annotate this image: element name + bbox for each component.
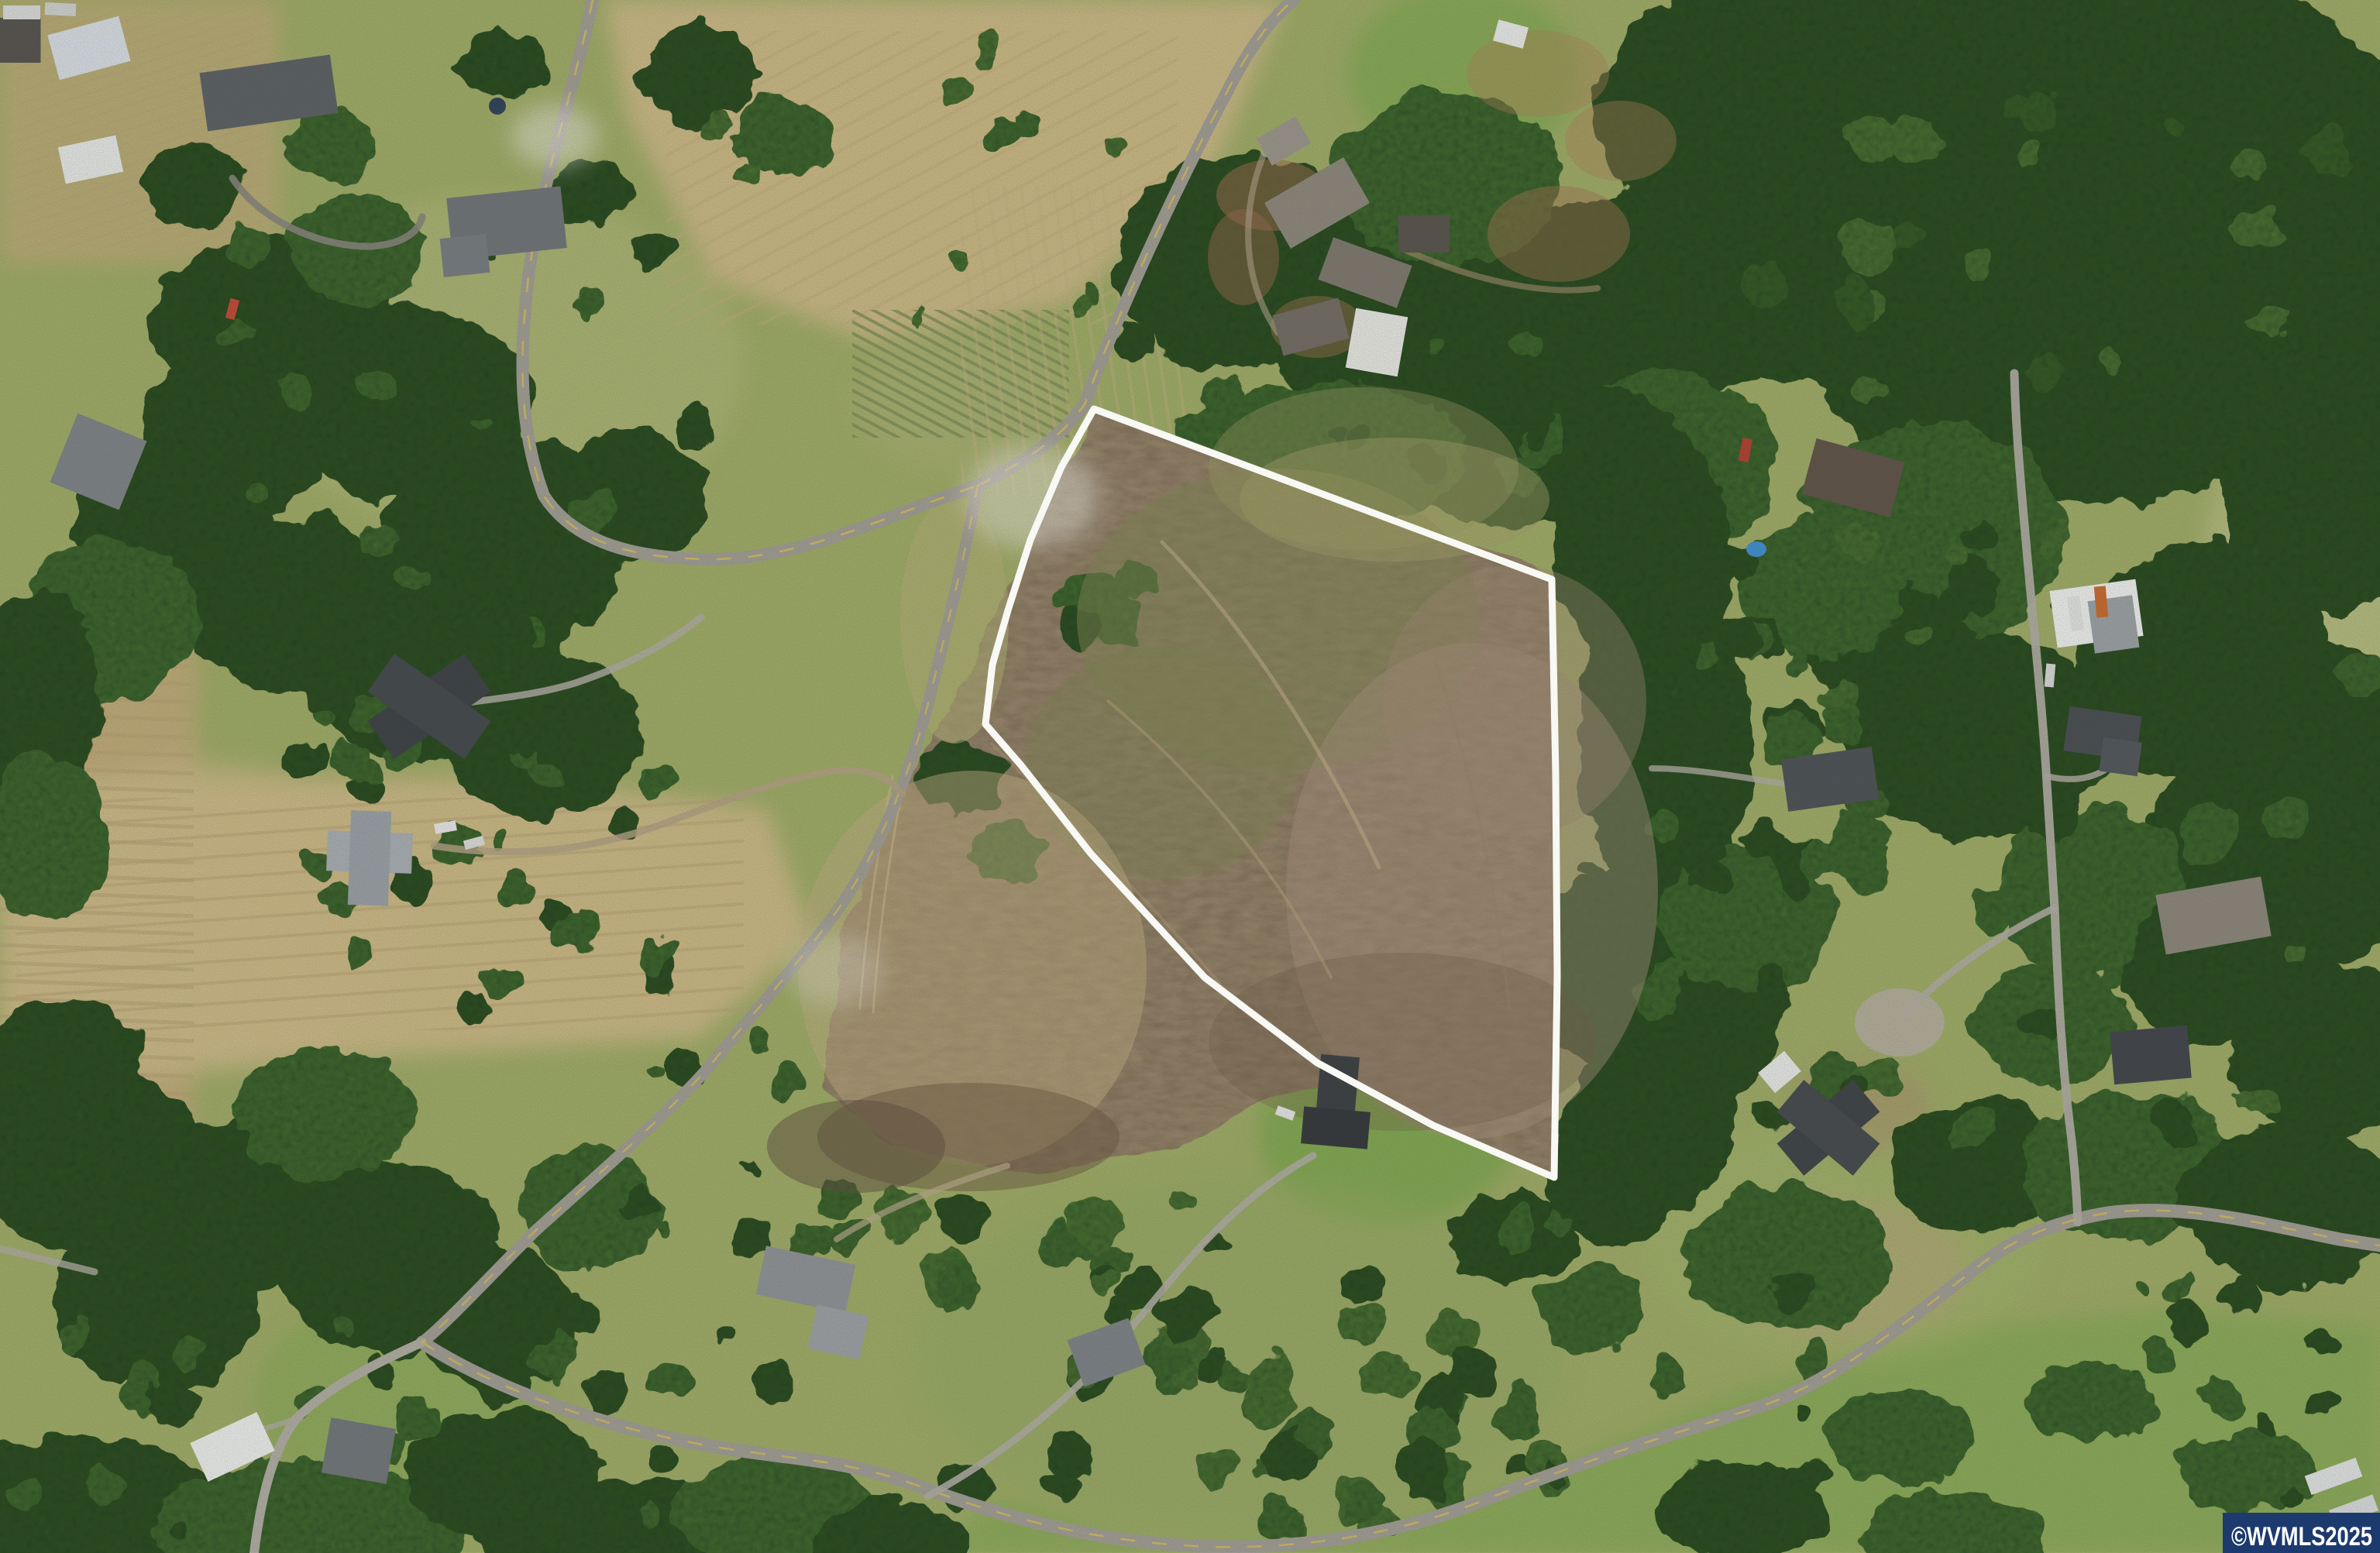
layer-grain	[0, 0, 2380, 1553]
satellite-map-image: ©WVMLS2025	[0, 0, 2380, 1553]
mls-watermark: ©WVMLS2025	[2223, 1513, 2380, 1553]
mls-watermark-text: ©WVMLS2025	[2231, 1522, 2372, 1551]
screenshot-root: ©WVMLS2025	[0, 0, 2380, 1553]
photo-grain	[0, 0, 2380, 1553]
map-layers	[0, 0, 2380, 1553]
